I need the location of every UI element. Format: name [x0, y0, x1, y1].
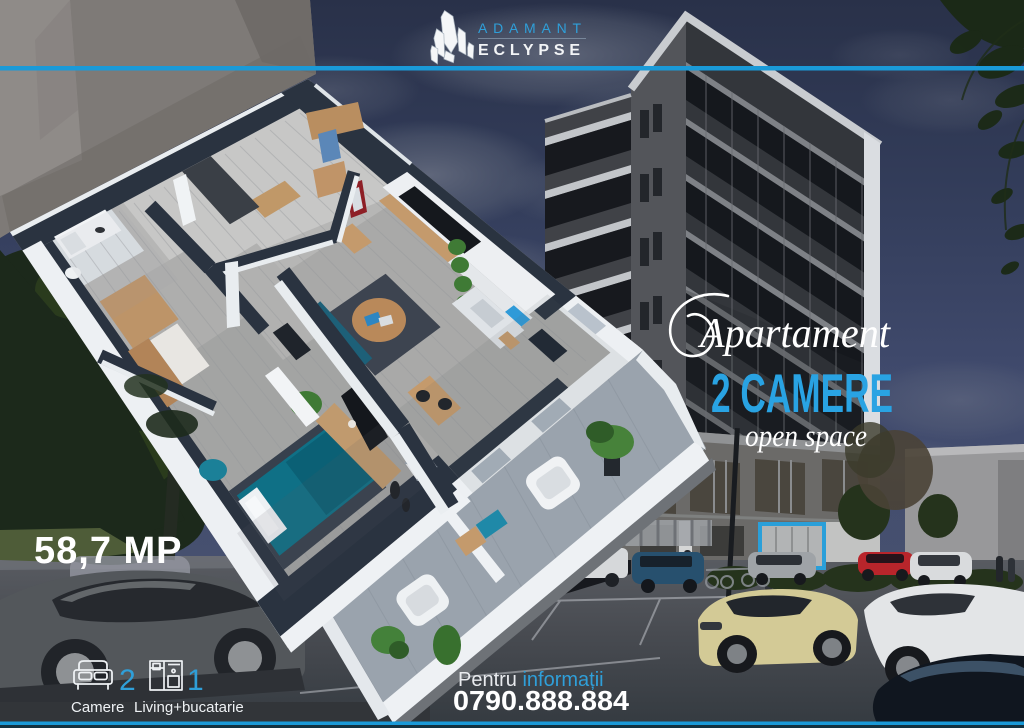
- svg-text:Camere: Camere: [71, 699, 124, 716]
- svg-text:Apartament: Apartament: [697, 311, 891, 357]
- svg-text:2 CAMERE: 2 CAMERE: [711, 362, 893, 424]
- svg-text:58,7 MP: 58,7 MP: [34, 530, 183, 572]
- svg-text:ADAMANT: ADAMANT: [478, 20, 586, 36]
- svg-text:ECLYPSE: ECLYPSE: [478, 42, 585, 59]
- svg-text:1: 1: [187, 664, 204, 697]
- svg-text:Living+bucatarie: Living+bucatarie: [134, 699, 244, 716]
- svg-text:0790.888.884: 0790.888.884: [453, 685, 629, 716]
- svg-text:2: 2: [119, 664, 136, 697]
